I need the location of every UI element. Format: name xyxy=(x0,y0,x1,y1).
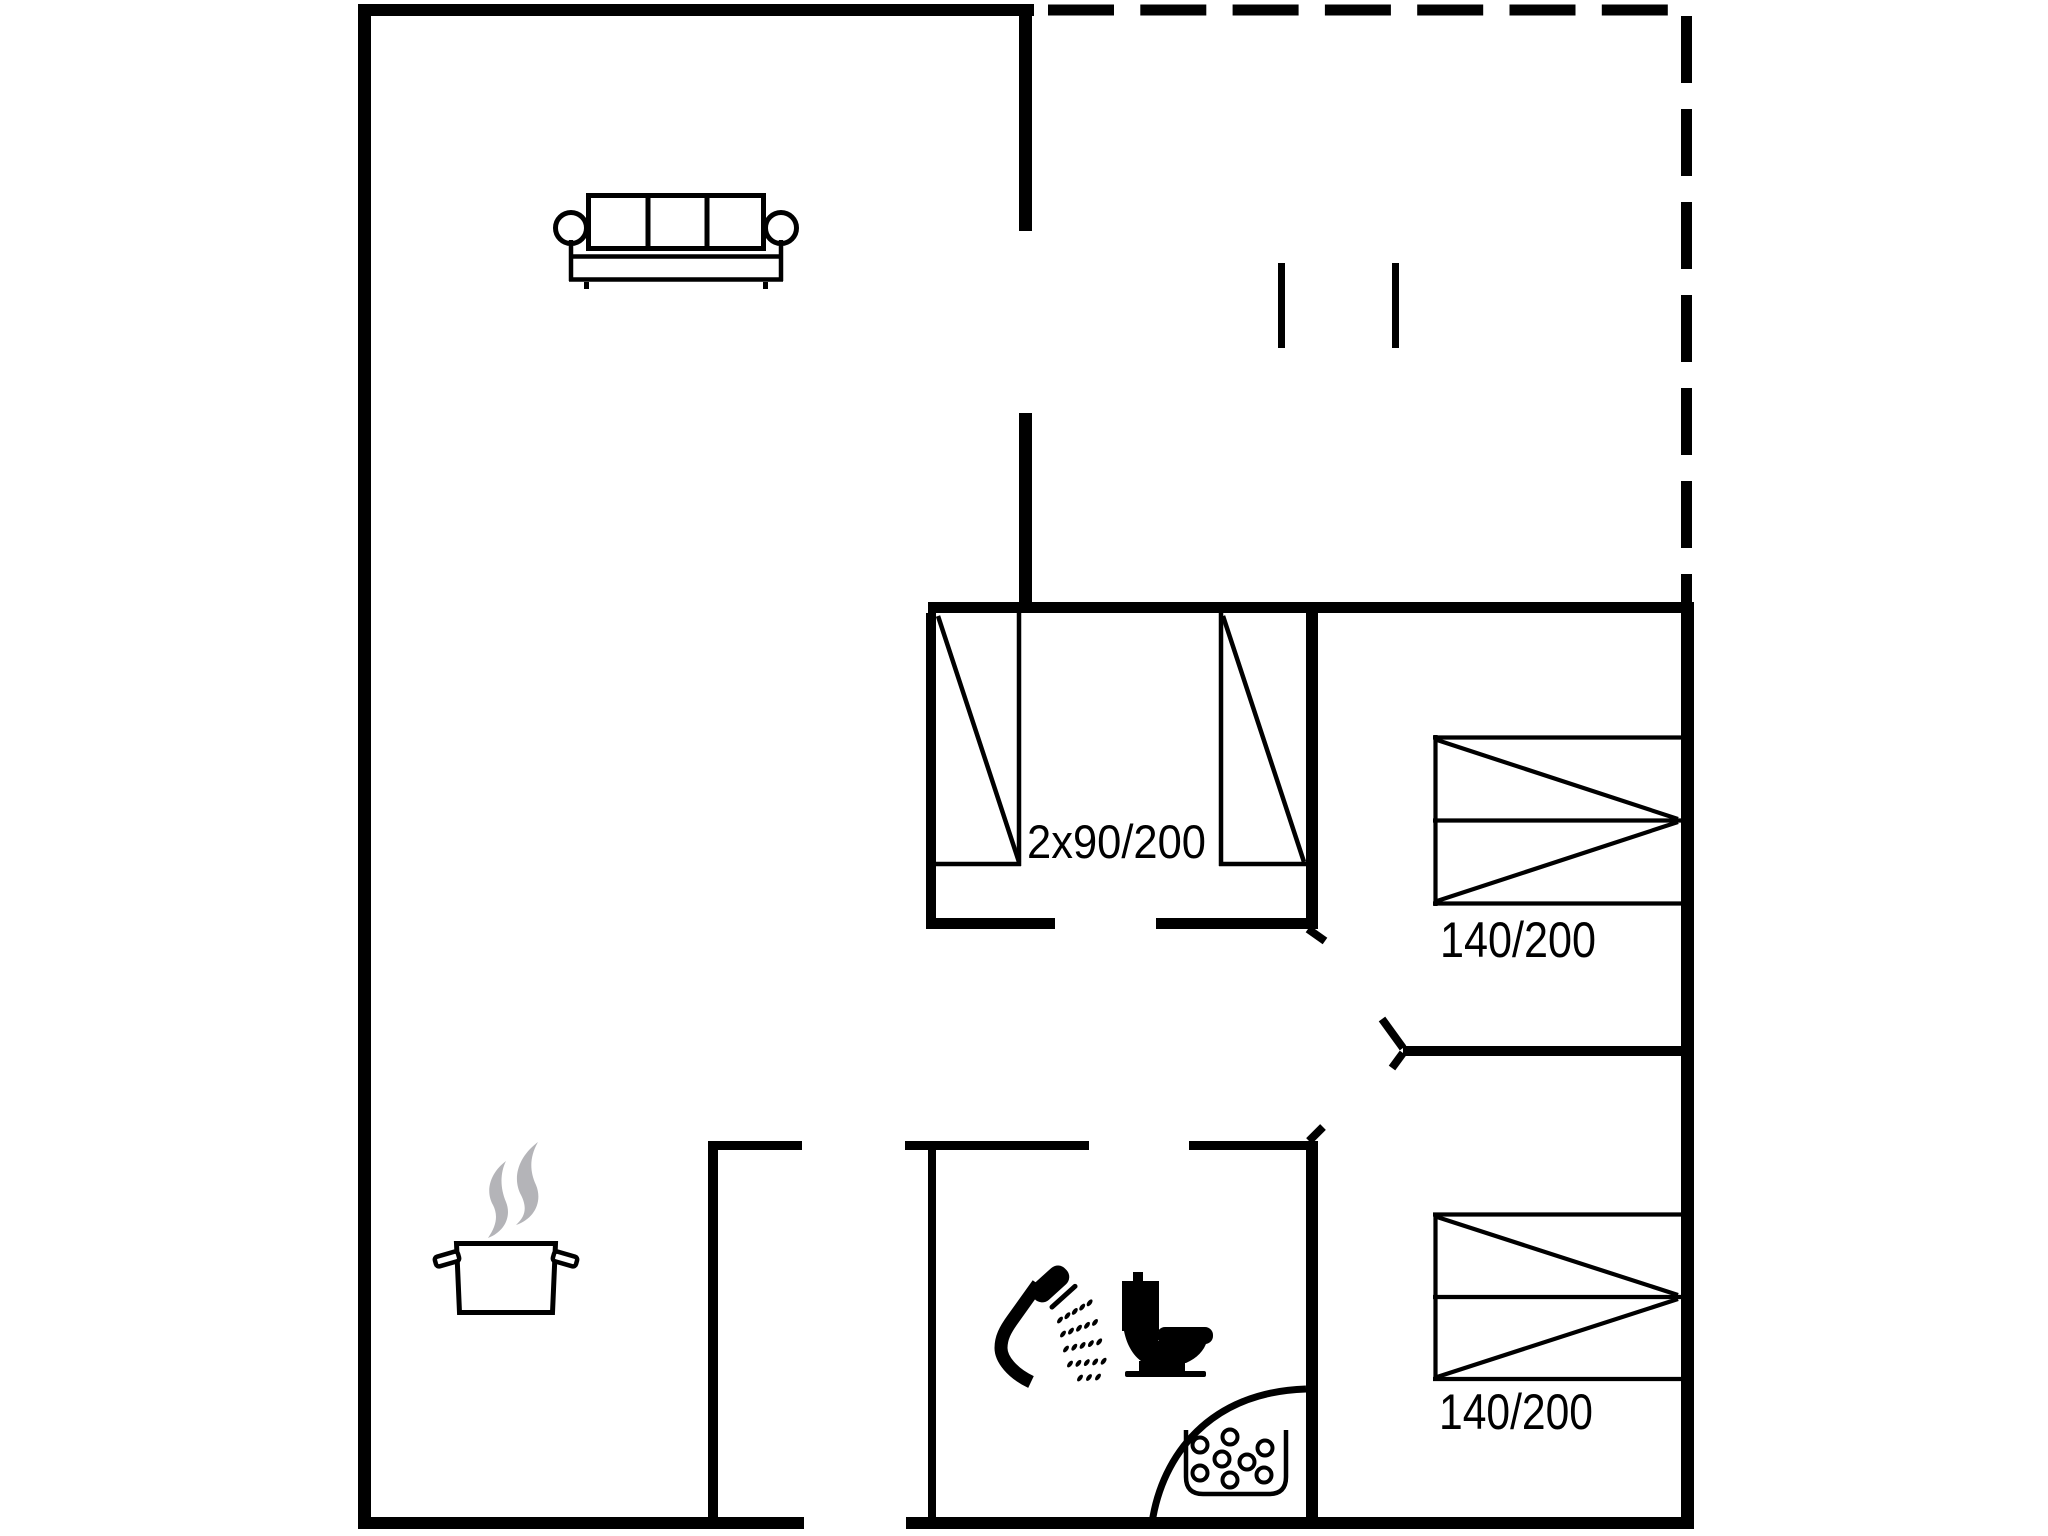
svg-text:140/200: 140/200 xyxy=(1439,1384,1593,1440)
svg-text:140/200: 140/200 xyxy=(1440,912,1596,968)
svg-text:2x90/200: 2x90/200 xyxy=(1027,815,1206,868)
